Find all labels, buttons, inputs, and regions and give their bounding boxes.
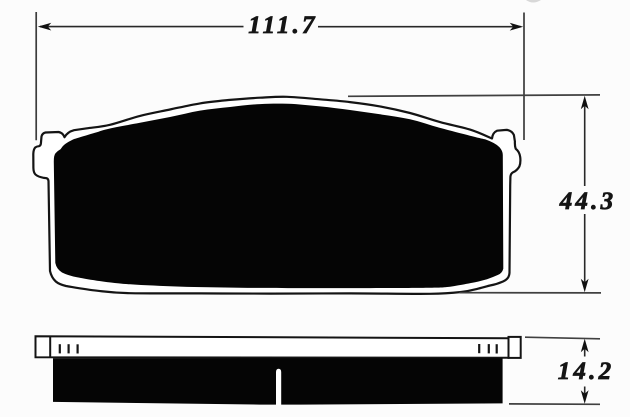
svg-text:44.3: 44.3	[559, 188, 617, 215]
svg-text:14.2: 14.2	[558, 358, 615, 385]
svg-text:111.7: 111.7	[248, 12, 318, 39]
